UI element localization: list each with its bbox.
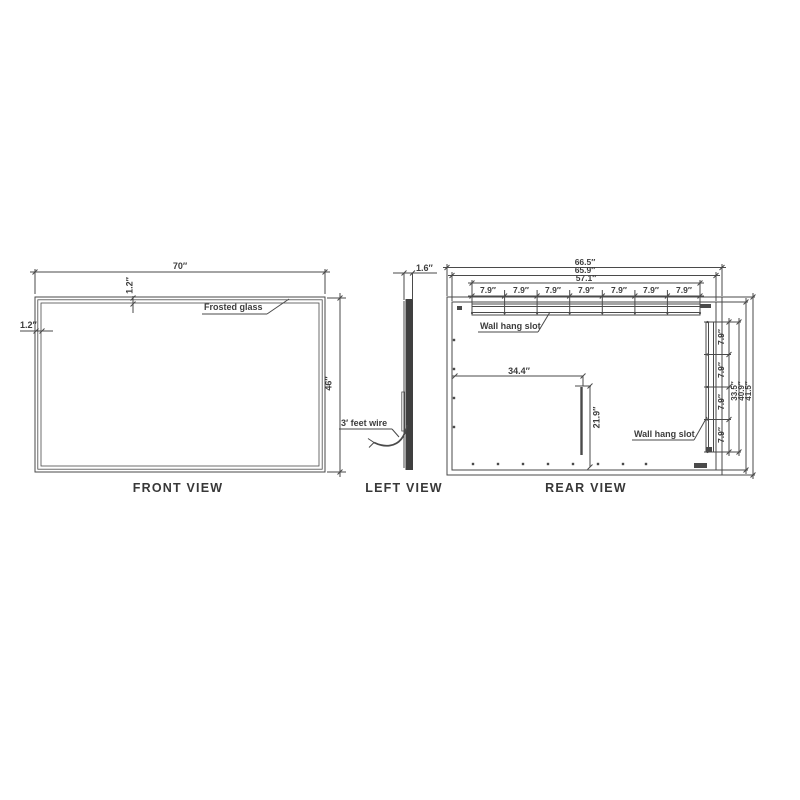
front-view-caption: FRONT VIEW (108, 481, 248, 495)
power-wire (368, 425, 407, 448)
left-view-caption: LEFT VIEW (334, 481, 474, 495)
drawing-linework (0, 0, 800, 800)
rear-view-caption: REAR VIEW (516, 481, 656, 495)
feet-wire-label: 3′ feet wire (341, 419, 387, 428)
front-left-frame-dim: 1.2″ (20, 321, 37, 330)
rear-top-segment-dim: 7.9″ (541, 286, 565, 294)
rear-top-segment-dim: 7.9″ (574, 286, 598, 294)
front-view-outline (35, 297, 325, 472)
rear-wire-bracket (575, 386, 591, 455)
rear-top-segment-dim: 7.9″ (672, 286, 696, 294)
left-view-panel (402, 299, 413, 470)
wall-hang-slot-top-label: Wall hang slot (480, 322, 541, 331)
rear-right-segment-dim: 7.9″ (717, 358, 725, 382)
front-width-dimension-line (30, 269, 330, 294)
left-thickness-dimension-line (393, 271, 437, 301)
technical-drawing-sheet: 70″ 1.2″ 1.2″ 46″ Frosted glass FRONT VI… (0, 0, 800, 800)
rear-top-segment-dim: 7.9″ (509, 286, 533, 294)
rear-right-segment-dim: 7.9″ (717, 325, 725, 349)
rear-slot-span-dim: 57.1″ (566, 274, 606, 282)
front-width-dim: 70″ (160, 262, 200, 271)
front-top-frame-dim: 1.2″ (126, 274, 135, 298)
rear-overall-height-dim: 41.5″ (745, 376, 753, 406)
front-top-frame-dimension-line (131, 296, 136, 314)
wall-hang-slot-right-label: Wall hang slot (634, 430, 695, 439)
rear-hole-offset-x-dim: 34.4″ (499, 367, 539, 376)
rear-top-segment-dim: 7.9″ (476, 286, 500, 294)
left-thickness-dim: 1.6″ (416, 264, 433, 273)
rear-right-segment-dim: 7.9″ (717, 423, 725, 447)
rear-right-segment-dim: 7.9″ (717, 390, 725, 414)
rear-hole-offset-y-dim: 21.9″ (593, 404, 602, 432)
frosted-glass-label: Frosted glass (204, 303, 263, 312)
wire-leader-line (339, 429, 399, 437)
rear-top-segment-dim: 7.9″ (607, 286, 631, 294)
rear-top-segment-dim: 7.9″ (639, 286, 663, 294)
front-height-dim: 46″ (325, 372, 334, 396)
